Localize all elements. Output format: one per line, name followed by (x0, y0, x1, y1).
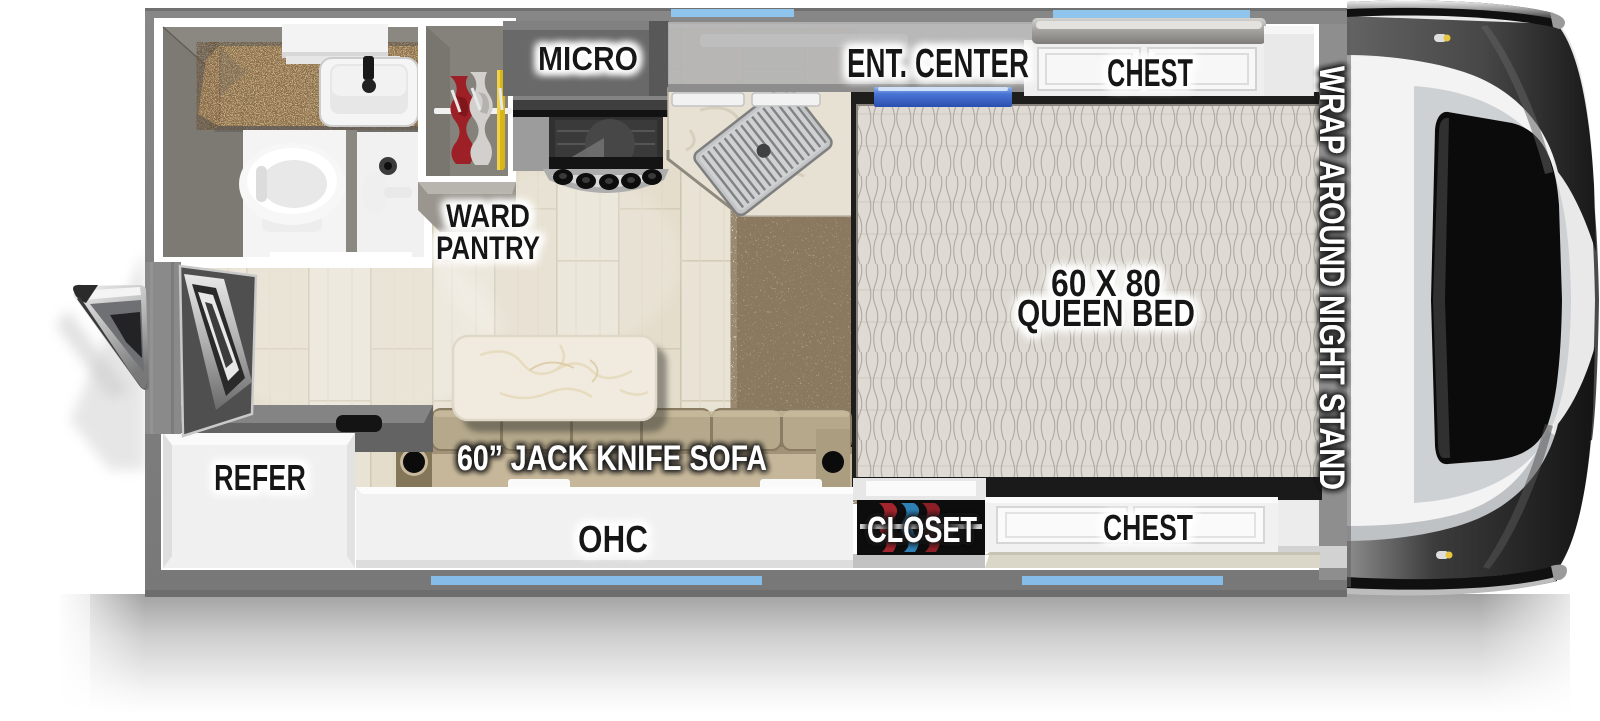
svg-text:CHEST: CHEST (1107, 52, 1193, 95)
svg-text:MICRO: MICRO (538, 40, 638, 77)
svg-text:CLOSET: CLOSET (867, 509, 977, 550)
svg-text:OHC: OHC (578, 519, 648, 561)
svg-text:PANTRY: PANTRY (436, 230, 540, 266)
svg-text:WRAP AROUND NIGHT STAND: WRAP AROUND NIGHT STAND (1312, 66, 1351, 490)
svg-text:ENT. CENTER: ENT. CENTER (847, 40, 1029, 86)
svg-text:CHEST: CHEST (1103, 507, 1193, 548)
svg-text:REFER: REFER (214, 457, 306, 498)
svg-text:WARD: WARD (446, 198, 530, 234)
svg-text:60” JACK KNIFE SOFA: 60” JACK KNIFE SOFA (457, 439, 767, 478)
svg-text:QUEEN BED: QUEEN BED (1017, 293, 1195, 335)
